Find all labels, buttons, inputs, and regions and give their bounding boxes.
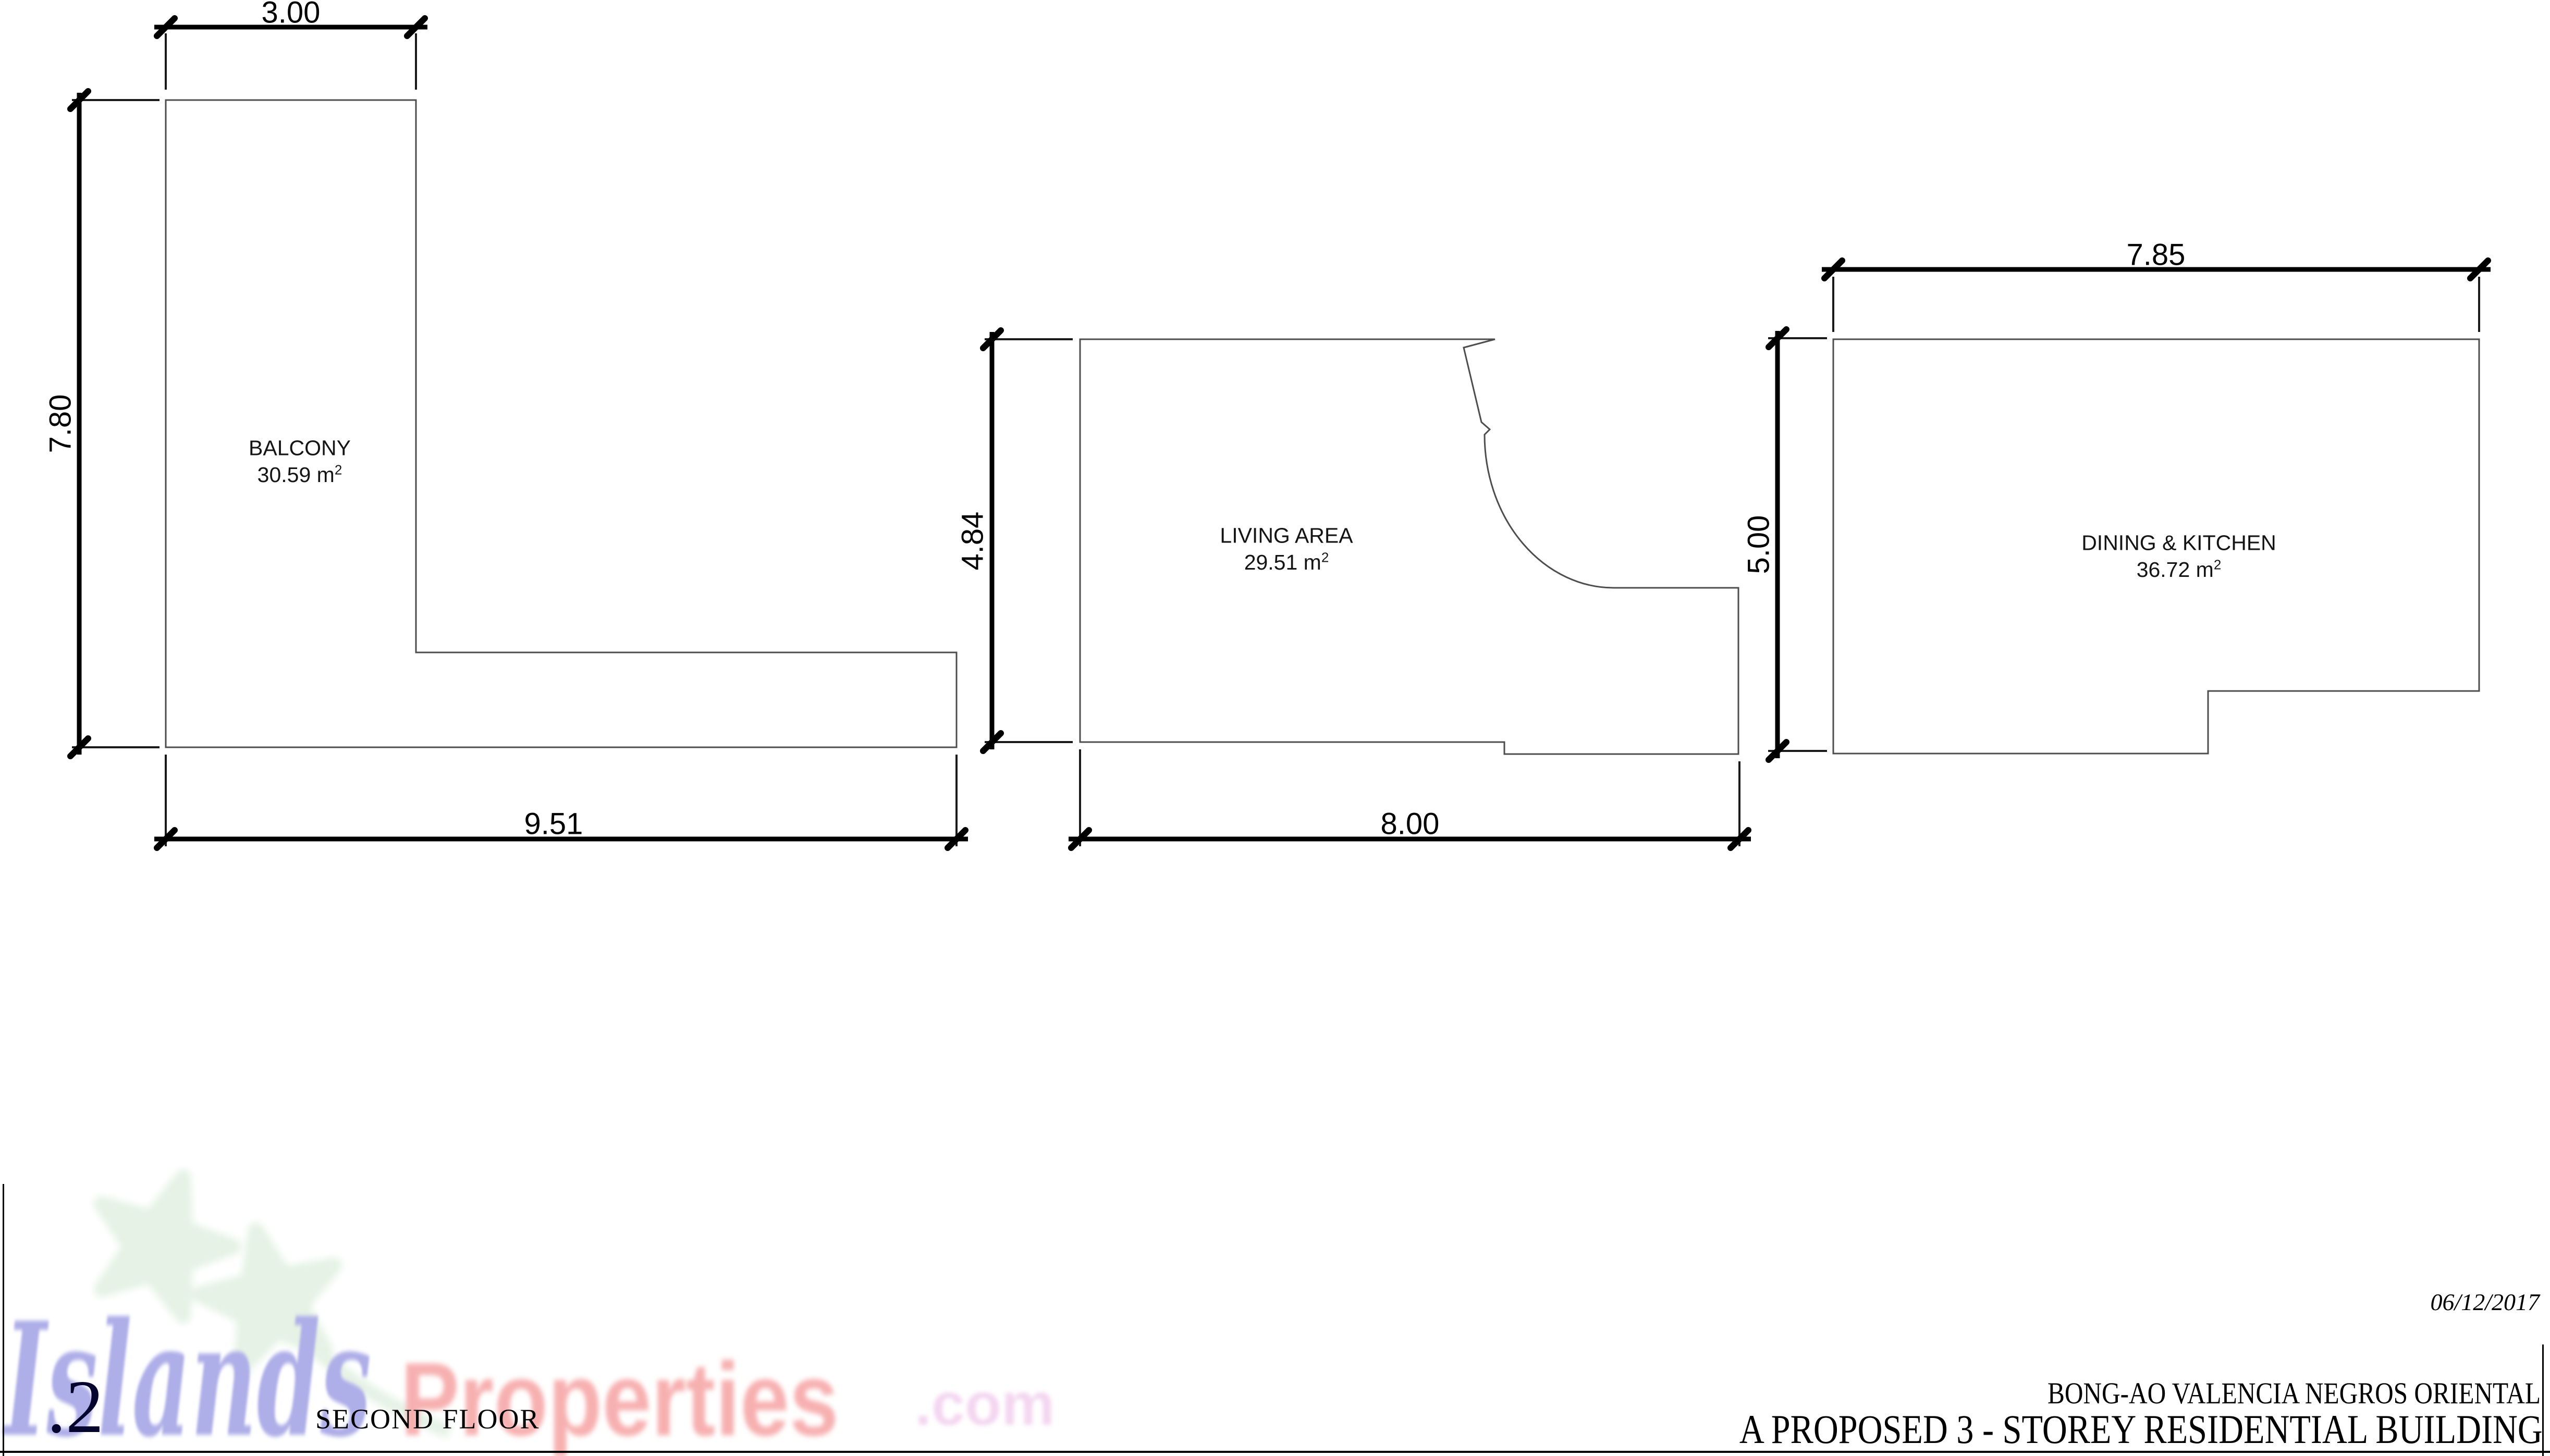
floor-title: SECOND FLOOR	[315, 1403, 540, 1435]
room-name: BALCONY	[249, 435, 351, 461]
floor-plan-drawing	[0, 0, 2550, 1456]
sheet-border-bottom	[0, 1451, 2550, 1453]
sheet-border-left	[3, 1184, 4, 1456]
room-name: LIVING AREA	[1220, 522, 1353, 549]
dim-living-height: 4.84	[955, 512, 990, 571]
room-outlines	[166, 100, 2479, 754]
dim-balcony-width: 3.00	[262, 0, 321, 30]
room-area: 30.59 m2	[249, 462, 351, 489]
project-location: BONG-AO VALENCIA NEGROS ORIENTAL	[2048, 1376, 2541, 1411]
project-title: A PROPOSED 3 - STOREY RESIDENTIAL BUILDI…	[1739, 1406, 2543, 1453]
room-name: DINING & KITCHEN	[2081, 529, 2276, 556]
room-label-dining-kitchen: DINING & KITCHEN 36.72 m2	[2081, 529, 2276, 583]
drawing-date: 06/12/2017	[2430, 1288, 2540, 1316]
living-area-outline	[1080, 339, 1738, 754]
room-label-living-area: LIVING AREA 29.51 m2	[1220, 522, 1353, 576]
dim-dining-height: 5.00	[1742, 515, 1776, 574]
room-label-balcony: BALCONY 30.59 m2	[249, 435, 351, 488]
room-area: 36.72 m2	[2081, 557, 2276, 584]
dim-dining-width: 7.85	[2127, 238, 2186, 273]
dim-living-width: 8.00	[1381, 807, 1440, 842]
sheet-border-right	[2542, 1344, 2544, 1456]
dim-balcony-height: 7.80	[43, 394, 78, 453]
dim-balcony-length: 9.51	[524, 807, 583, 842]
sheet-number: .2	[47, 1369, 104, 1445]
balcony-outline	[166, 100, 957, 747]
floor-plan-sheet: Islands Properties .com	[0, 0, 2550, 1456]
room-area: 29.51 m2	[1220, 549, 1353, 576]
